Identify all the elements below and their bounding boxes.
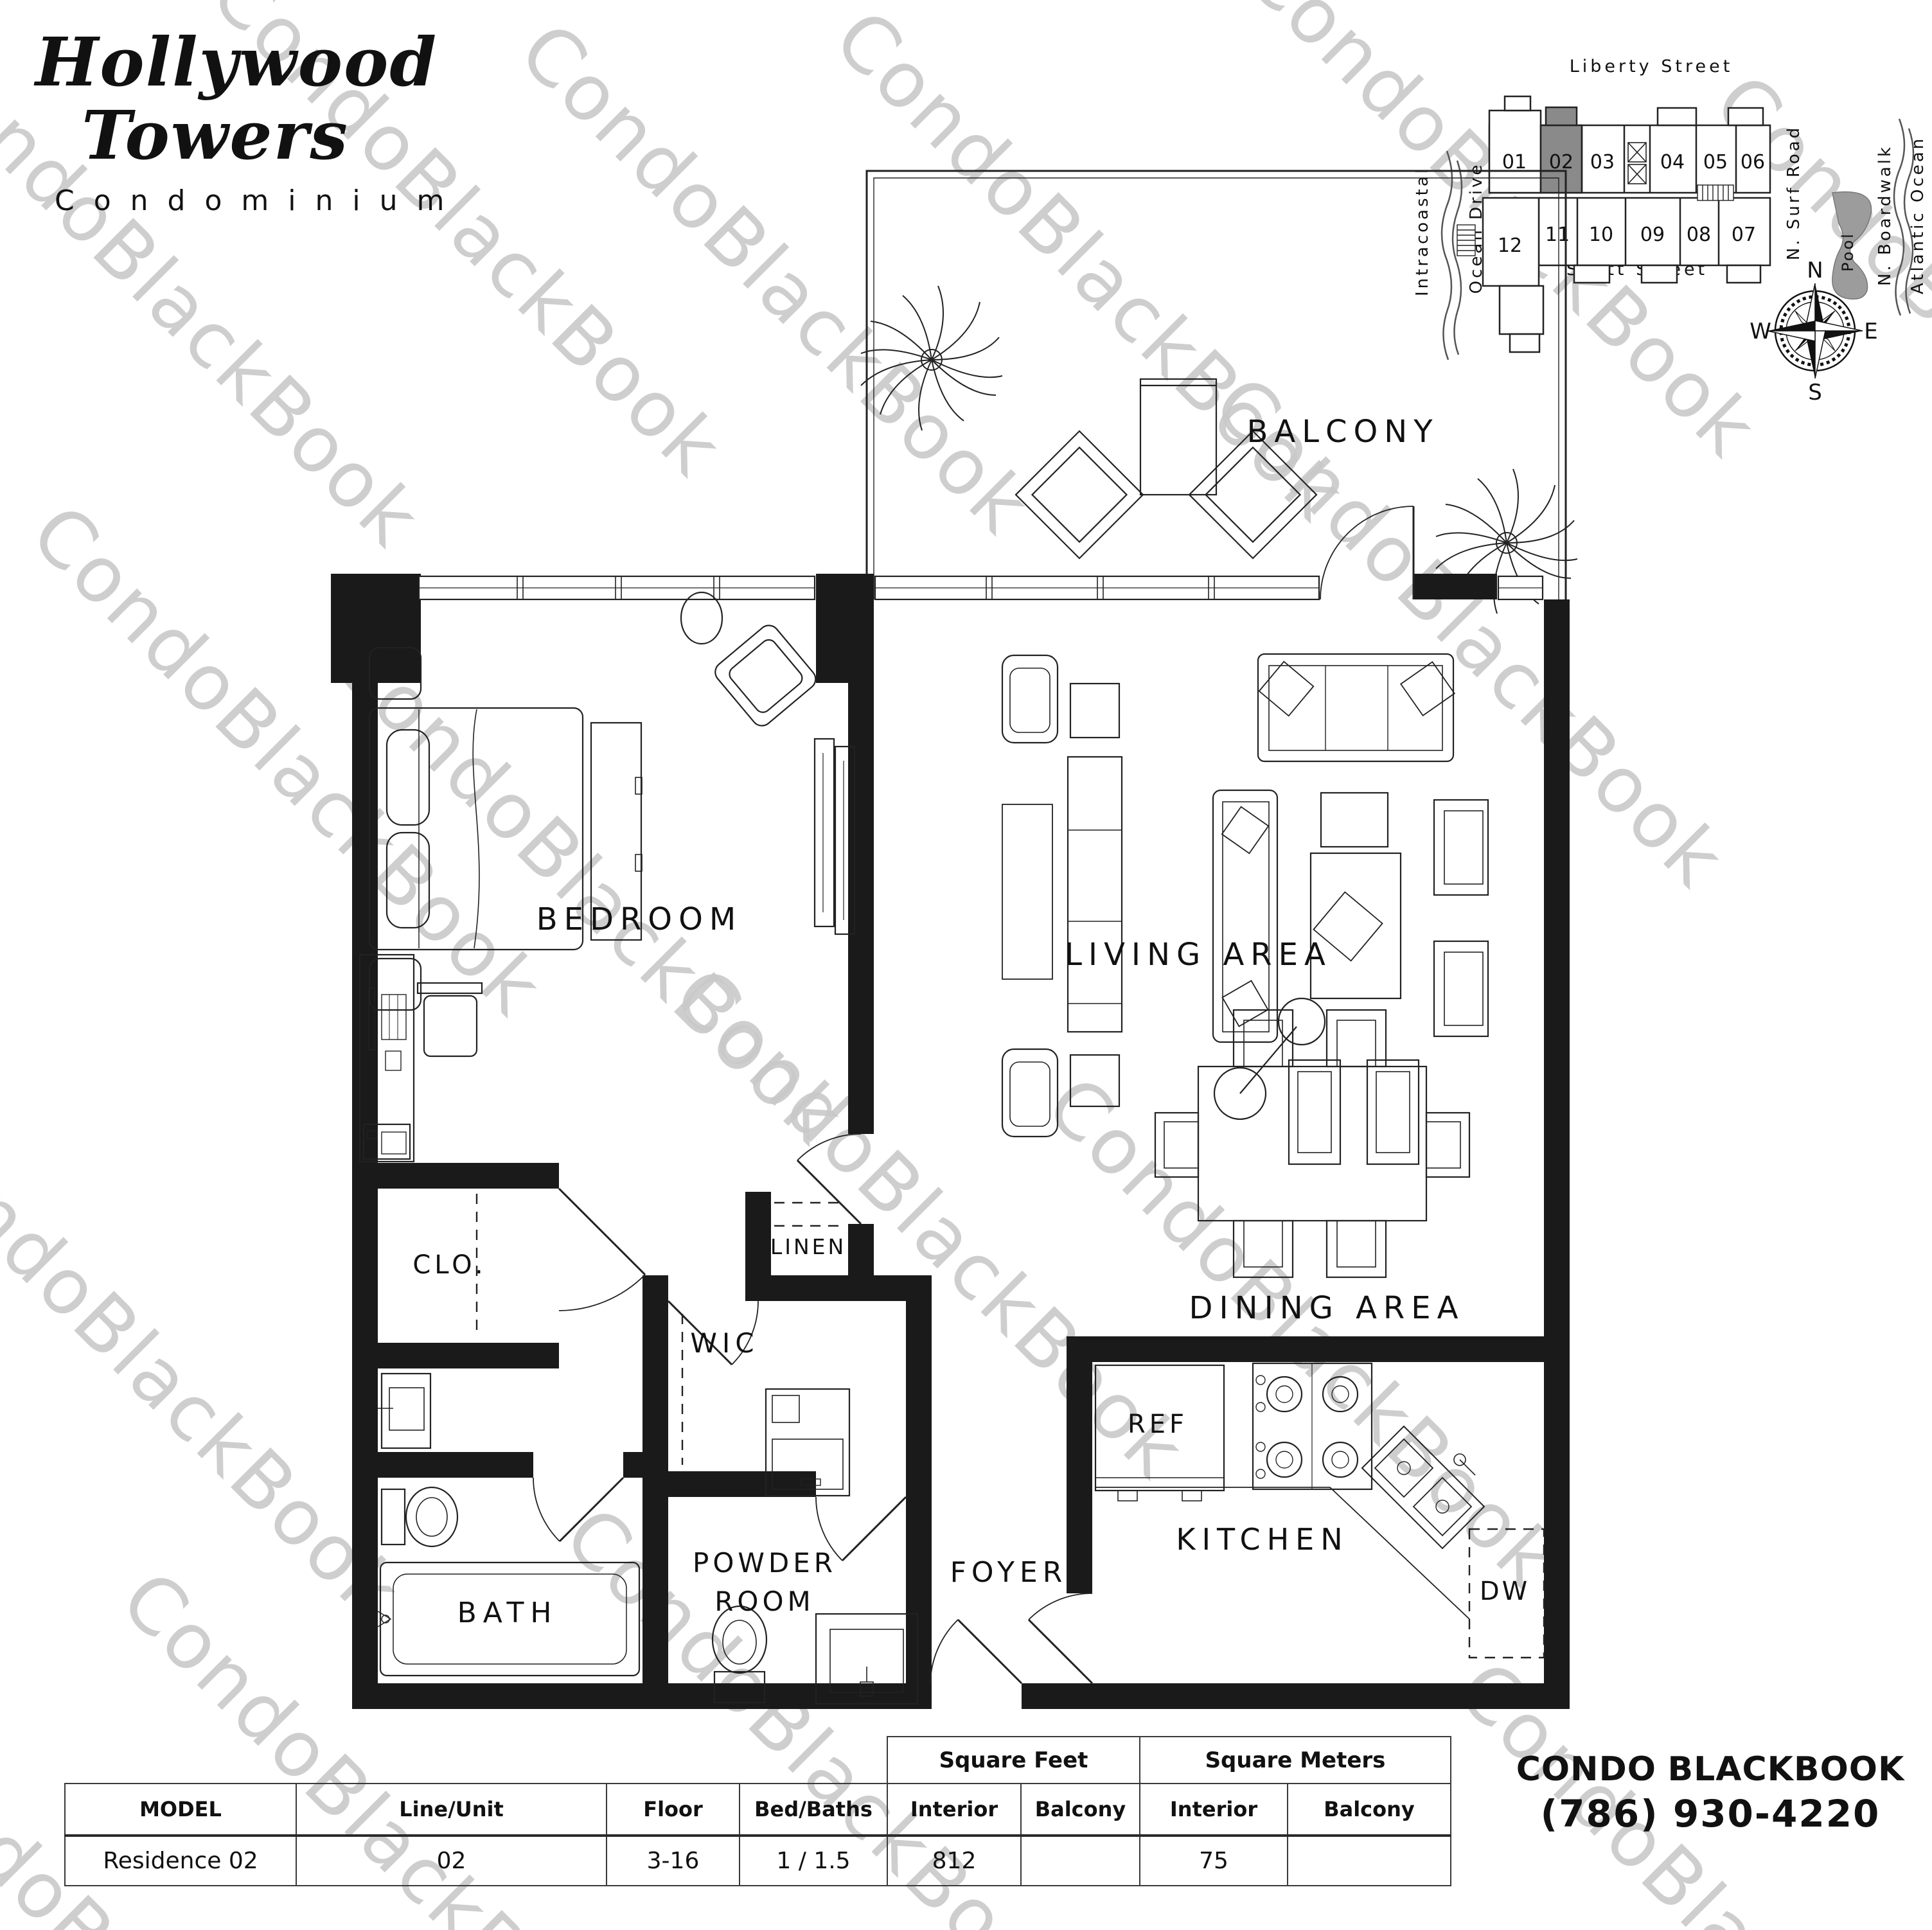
label-boardwalk: N. Boardwalk [1875,145,1895,286]
dining-chair-icon [1234,1221,1293,1277]
cell-sqft-interior: 812 [887,1836,1021,1886]
table-row: Residence 02 02 3-16 1 / 1.5 812 75 [65,1836,1451,1886]
closet-door-icon [559,1189,645,1311]
street-label-top: Liberty Street [1570,57,1733,76]
brand-name-light: CONDO [1516,1750,1656,1789]
room-label-kitchen: KITCHEN [1176,1522,1349,1557]
room-label-living: LIVING AREA [1065,937,1332,973]
pillow-icon [387,730,429,825]
pillow-icon [1401,662,1455,716]
room-label-powder-2: ROOM [714,1586,815,1617]
compass-w-label: W [1750,319,1771,344]
group-header-square-meters: Square Meters [1140,1737,1451,1784]
brand-name-bold: BLACKBOOK [1667,1750,1904,1789]
unit-12: 12 [1498,235,1522,257]
toilet-icon [382,1489,405,1545]
desk-chair-icon [418,983,482,993]
room-label-bath: BATH [457,1597,558,1629]
pillow-icon [387,833,429,928]
side-chair-icon [1434,800,1488,895]
floor-plan-drawing: Liberty Street Scott Street Intracoastal… [0,0,1932,1930]
label-intracoastal: Intracoastal [1413,166,1432,296]
kitchen-door-icon [1029,1593,1092,1683]
room-label-foyer: FOYER [950,1556,1068,1589]
unit-06: 06 [1741,151,1765,173]
bedroom-door-icon [797,1134,861,1224]
room-label-powder-1: POWDER [693,1547,837,1579]
unit-10: 10 [1589,224,1613,246]
room-label-closet: CLO. [412,1250,486,1280]
dining-chair-icon [1327,1221,1386,1277]
cell-line-unit: 02 [296,1836,607,1886]
balcony-door-icon [1320,506,1414,599]
dining-chair-icon [1234,1010,1293,1067]
cell-sqft-balcony [1021,1836,1140,1886]
side-chair-icon [1434,941,1488,1036]
mirror-icon [815,739,834,926]
accent-chair-icon [711,621,820,730]
room-label-linen: LINEN [770,1234,846,1259]
coffee-table-icon [1311,853,1401,998]
sofa-icon [1258,654,1453,761]
entry-door-icon [930,1620,1022,1683]
col-header-sqft-interior: Interior [887,1784,1021,1836]
dining-chair-icon [1155,1113,1198,1177]
col-header-sqm-interior: Interior [1140,1784,1288,1836]
unit-09: 09 [1640,224,1665,246]
floorplan-page: CondoBlackBook CondoBlackBook CondoBlack… [0,0,1932,1930]
window-band-icon [419,576,1543,599]
kitchen-sink-icon [1362,1426,1484,1548]
balcony-table-icon [1140,379,1216,495]
dining-table-icon [1198,1067,1426,1221]
room-label-dw: DW [1480,1577,1530,1606]
room-label-ref: REF [1128,1410,1188,1439]
plant-icon [861,286,1002,430]
compass-e-label: E [1864,319,1877,344]
bath-door-icon [533,1478,623,1541]
blanket-fold-icon [473,709,479,948]
room-label-wic: WIC [690,1327,759,1359]
kitchen-fixtures [1095,1363,1484,1619]
cell-sqm-interior: 75 [1140,1836,1288,1886]
spec-table: Square Feet Square Meters MODEL Line/Uni… [64,1736,1451,1886]
room-label-dining: DINING AREA [1189,1290,1465,1326]
side-table-icon [1070,1055,1119,1106]
brand-phone: (786) 930-4220 [1498,1791,1922,1837]
pillow-icon [1222,807,1268,853]
label-atlantic-ocean: Atlantic Ocean [1908,136,1928,294]
accent-chair-icon [1289,1060,1340,1164]
cell-model: Residence 02 [65,1836,296,1886]
console-icon [1068,757,1122,1032]
cell-sqm-balcony [1288,1836,1451,1886]
pillow-icon [1259,662,1314,716]
table-spacer [65,1737,887,1784]
ottoman-icon [1321,793,1388,847]
building-footprint [1483,96,1770,352]
mouse-icon [386,1051,401,1070]
unit-03: 03 [1590,151,1615,173]
col-header-bed-baths: Bed/Baths [740,1784,887,1836]
unit-07: 07 [1732,224,1756,246]
label-surf-road: N. Surf Road [1784,125,1803,260]
cell-bed-baths: 1 / 1.5 [740,1836,887,1886]
balcony-chair-icon [1016,379,1316,558]
keyboard-icon [382,995,406,1040]
room-label-bedroom: BEDROOM [536,901,743,937]
dining-furniture [1155,1010,1469,1277]
footer-brand: CONDO BLACKBOOK (786) 930-4220 [1498,1749,1922,1837]
compass-s-label: S [1808,380,1822,405]
bedroom-furniture [360,592,855,1162]
col-header-line-unit: Line/Unit [296,1784,607,1836]
building-subtitle: Condominium [35,184,395,217]
col-header-floor: Floor [607,1784,740,1836]
group-header-square-feet: Square Feet [887,1737,1140,1784]
pillow-icon [1222,980,1268,1026]
dining-chair-icon [1426,1113,1469,1177]
col-header-sqm-balcony: Balcony [1288,1784,1451,1836]
side-table-icon [1070,684,1119,738]
compass-n-label: N [1807,258,1823,283]
unit-08: 08 [1687,224,1711,246]
col-header-model: MODEL [65,1784,296,1836]
accent-chair-icon [1367,1060,1419,1164]
dining-chair-icon [1327,1010,1386,1067]
col-header-sqft-balcony: Balcony [1021,1784,1140,1836]
building-title: Hollywood Towers [35,26,395,173]
pool-label: Pool [1839,232,1857,272]
room-label-balcony: BALCONY [1246,414,1439,450]
header: Hollywood Towers Condominium [35,26,395,217]
unit-05: 05 [1703,151,1728,173]
site-key-map: Liberty Street Scott Street Intracoastal… [1413,57,1928,360]
shelf-icon [1002,804,1052,979]
unit-04: 04 [1660,151,1685,173]
cell-floor: 3-16 [607,1836,740,1886]
living-furniture [1002,654,1488,1164]
